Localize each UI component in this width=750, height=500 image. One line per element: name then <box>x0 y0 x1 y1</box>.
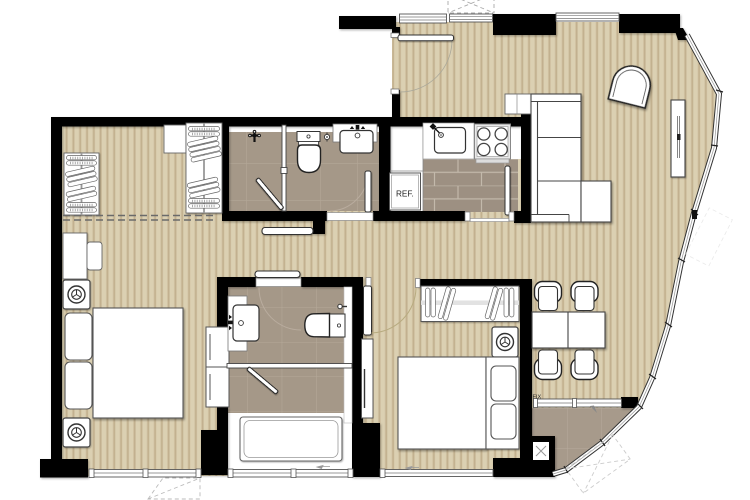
svg-text:REF.: REF. <box>396 190 414 199</box>
svg-text:FIX: FIX <box>533 394 542 400</box>
